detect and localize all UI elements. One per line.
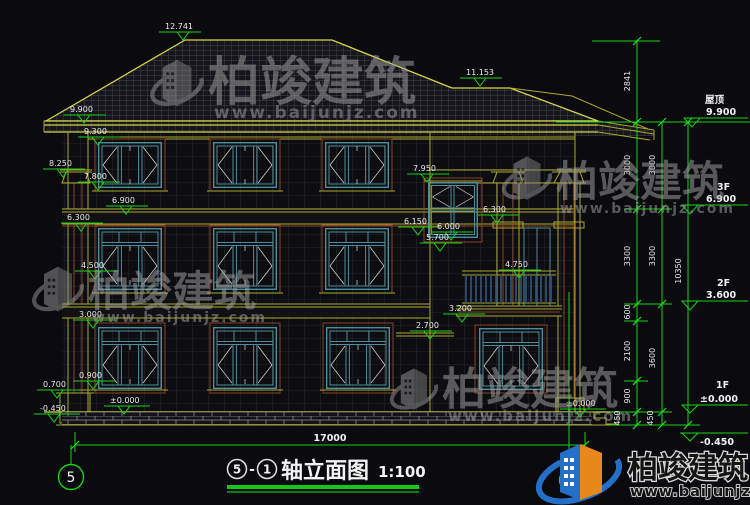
dim-value: 2100 [623, 341, 632, 361]
elev-label: 9.300 [84, 127, 107, 136]
title-dash: - [249, 462, 255, 478]
elev-label: 8.250 [49, 159, 72, 168]
dim-value: 10350 [674, 258, 683, 283]
elev-label: 7.950 [413, 164, 436, 173]
elev-label: 12.741 [165, 22, 193, 31]
watermark-url: www.baijunjz.com [214, 103, 420, 123]
brand-url: www.baijunjz.com [630, 484, 750, 500]
logo-building-blue [560, 444, 580, 500]
elev-label: 6.000 [437, 222, 460, 231]
watermark-text: 柏竣建筑 [88, 267, 256, 316]
elev-label: 6.300 [483, 205, 506, 214]
elev-label: 3.200 [449, 304, 472, 313]
dim-value: 17000 [313, 433, 346, 444]
elev-label: 9.900 [70, 105, 93, 114]
floor-label-2f: 2F 3.600 [682, 278, 748, 310]
floor-label-1f: 1F ±0.000 [682, 380, 748, 413]
elev-label: 6.150 [404, 217, 427, 226]
title-axis-num-left: 5 [233, 463, 241, 477]
dim-value: 3300 [648, 246, 657, 266]
elev-label: 0.900 [79, 371, 102, 380]
drawing-title: 5 - 1 轴立面图 1:100 [227, 458, 426, 492]
title-scale: 1:100 [378, 463, 426, 481]
dim-width: 17000 [71, 432, 589, 452]
elev-label: 6.300 [67, 213, 90, 222]
brand-name: 柏竣建筑 [628, 451, 748, 486]
title-text: 轴立面图 [281, 458, 369, 484]
elev-label: 5.700 [426, 233, 449, 242]
floor-name: 1F [716, 380, 729, 391]
elev-label: 7.800 [84, 172, 107, 181]
brand-logo: 柏竣建筑 www.baijunjz.com [532, 443, 750, 505]
elev-marker-subridge: 11.153 [460, 68, 502, 86]
logo-building-orange [580, 444, 602, 500]
elev-label: 11.153 [466, 68, 494, 77]
dim-value: 3600 [648, 348, 657, 368]
axis-number: 5 [67, 470, 76, 486]
dim-value: 450 [646, 410, 655, 425]
elev-label: 6.900 [112, 196, 135, 205]
dim-value: 600 [623, 304, 632, 319]
floor-elevation: -0.450 [700, 437, 734, 448]
title-axis-num-right: 1 [263, 463, 271, 477]
elev-label: 4.750 [505, 260, 528, 269]
watermark-text: 柏竣建筑 [556, 157, 724, 206]
dim-value: 900 [623, 388, 632, 403]
cad-canvas: 12.741 11.153 9.900 9.300 8.250 7.800 6.… [0, 0, 750, 505]
elev-marker-ridge: 12.741 [159, 22, 201, 40]
floor-name: 2F [717, 278, 730, 289]
dim-value: 3300 [623, 246, 632, 266]
axis-bubble-left: 5 [59, 445, 84, 490]
elev-label: -0.450 [40, 404, 66, 413]
floor-elevation: 3.600 [706, 290, 736, 301]
title-underline [227, 485, 419, 489]
watermark-url: www.baijunjz.com [560, 201, 735, 217]
watermark-url: www.baijunjz.com [92, 310, 267, 326]
elev-label: 0.700 [43, 380, 66, 389]
floor-elevation: 9.900 [706, 107, 736, 118]
elev-label: 2.700 [416, 321, 439, 330]
floor-name: 屋顶 [705, 95, 725, 106]
floor-elevation: ±0.000 [700, 394, 738, 405]
elev-label: ±0.000 [110, 396, 140, 405]
watermark-url: www.baijunjz.com [448, 407, 633, 425]
dim-value: 2841 [623, 71, 632, 91]
floor-label-below: -0.450 [680, 433, 748, 448]
